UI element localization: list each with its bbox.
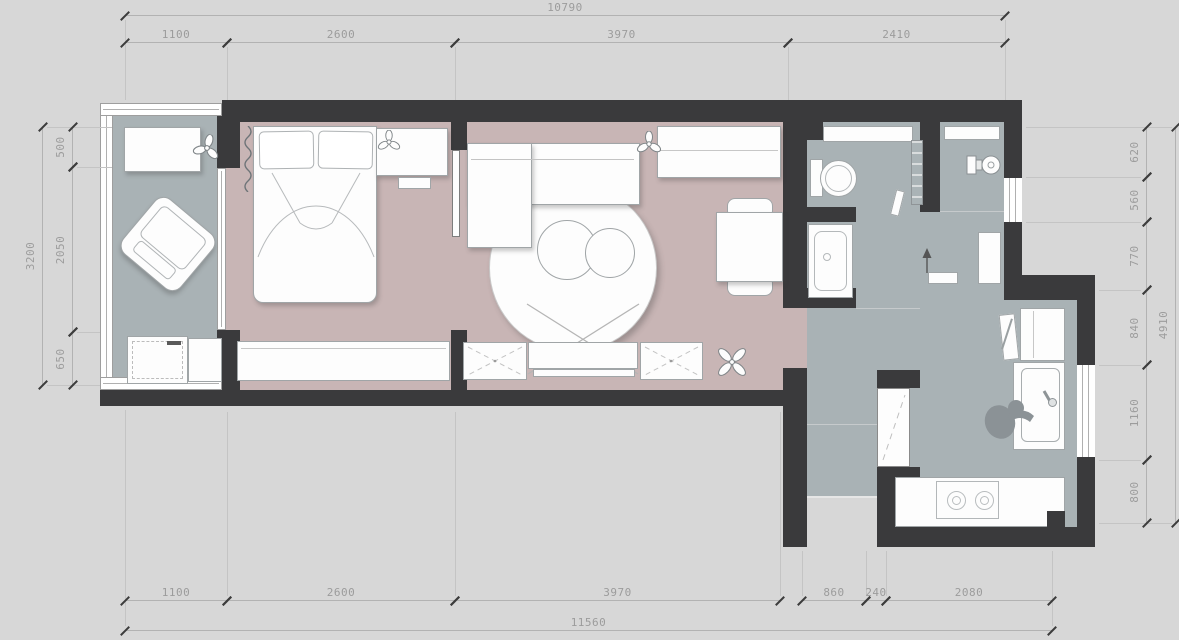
entry-shelf: [944, 126, 1000, 140]
door-leaf-open: [877, 388, 910, 467]
dim-top-seg-2: 3970: [455, 42, 788, 43]
dim-top-seg-0: 1100: [125, 42, 227, 43]
dim-bottom-seg-3: 860: [802, 600, 866, 601]
wall-kitchen-bottom: [877, 527, 1095, 547]
dim-right-seg-0: 620: [1146, 127, 1147, 177]
wall-right-upper-a: [1004, 100, 1022, 178]
entry-door-opening: [1004, 178, 1022, 222]
pillow-left: [259, 131, 315, 170]
balcony-cabinet: [188, 338, 222, 382]
floor-plan-canvas: 10790 1100 2600 3970 2410 1100 2600 3970…: [0, 0, 1179, 640]
entry-wall-shelf: [928, 272, 958, 284]
wall-top: [222, 100, 1022, 122]
dim-top-seg-1: 2600: [227, 42, 455, 43]
balcony-side-table: [124, 127, 201, 172]
floor-hallway: [807, 300, 877, 497]
entry-cabinet: [978, 232, 1001, 284]
wall-living-bath: [783, 100, 807, 308]
dim-right-seg-2: 770: [1146, 222, 1147, 290]
blanket-folds: [254, 171, 378, 304]
wall-step: [1004, 275, 1095, 300]
bedroom-sliding-door: [452, 150, 460, 237]
dim-right-seg-5: 800: [1146, 460, 1147, 523]
dim-bottom-seg-0: 1100: [125, 600, 227, 601]
curtain-squiggle-icon: [242, 126, 254, 192]
pillow-right: [318, 131, 374, 170]
toilet-bowl: [820, 160, 857, 197]
dim-top-overall: 10790: [125, 15, 1005, 16]
balcony-window-top: [100, 103, 222, 116]
hall-threshold-line: [807, 424, 877, 425]
north-arrow-icon: [921, 247, 933, 273]
wall-bottom-main: [100, 390, 790, 406]
dim-bottom-seg-5: 2080: [886, 600, 1052, 601]
balcony-sliding-window: [217, 168, 226, 330]
fridge: [1020, 308, 1065, 361]
wall-toilet-partition: [783, 207, 856, 222]
wall-divider-bedroom-top: [451, 122, 467, 150]
faucet-base: [1048, 398, 1057, 407]
dim-left-seg-0: 500: [72, 127, 73, 167]
tv-stand-front: [533, 369, 635, 377]
dim-right-seg-4: 1160: [1146, 365, 1147, 460]
washing-machine: [127, 336, 188, 384]
dim-bottom-seg-1: 2600: [227, 600, 455, 601]
bedroom-plant-icon: [377, 130, 401, 154]
burner-right: [975, 491, 994, 510]
dim-bottom-overall: 11560: [125, 630, 1052, 631]
dim-right-seg-3: 840: [1146, 290, 1147, 365]
burner-left: [947, 491, 966, 510]
wall-kitchen-door-top: [877, 370, 920, 388]
living-plant-icon: [636, 131, 662, 157]
console-cabinet: [657, 126, 781, 178]
hall-edge-line: [807, 496, 877, 498]
washbasin-icon: [966, 150, 1002, 180]
tv-cabinet-left: [463, 342, 527, 380]
nightstand-tray: [398, 177, 431, 189]
person-figure: [978, 392, 1038, 446]
balcony-window-left: [100, 103, 113, 390]
dining-chair-bottom: [727, 280, 773, 296]
double-bed: [253, 126, 377, 303]
bath-threshold-line: [856, 308, 920, 309]
tv-cabinet-right: [640, 342, 703, 380]
bathroom-shelf: [823, 126, 913, 142]
wall-bath-entry: [920, 122, 940, 212]
dim-left-seg-1: 2050: [72, 167, 73, 332]
wardrobe: [237, 341, 450, 381]
wall-corner-block-kitchen: [1047, 511, 1065, 527]
dim-left-overall: 3200: [42, 127, 43, 385]
dim-right-overall: 4910: [1175, 127, 1176, 523]
wall-hall-left: [783, 368, 807, 547]
coffee-table-small: [585, 228, 635, 278]
tv-stand: [528, 342, 638, 369]
wall-stub-bath: [807, 122, 823, 140]
dim-right-seg-1: 560: [1146, 177, 1147, 222]
bathtub: [808, 224, 853, 298]
dim-left-seg-2: 650: [72, 332, 73, 385]
cooktop: [936, 481, 999, 519]
sofa-back-line: [471, 159, 634, 160]
towel-radiator: [911, 140, 923, 205]
floor-plant-icon: [714, 344, 750, 380]
dining-table: [716, 212, 783, 282]
dim-bottom-seg-2: 3970: [455, 600, 780, 601]
dim-top-seg-3: 2410: [788, 42, 1005, 43]
kitchen-window: [1077, 365, 1095, 457]
